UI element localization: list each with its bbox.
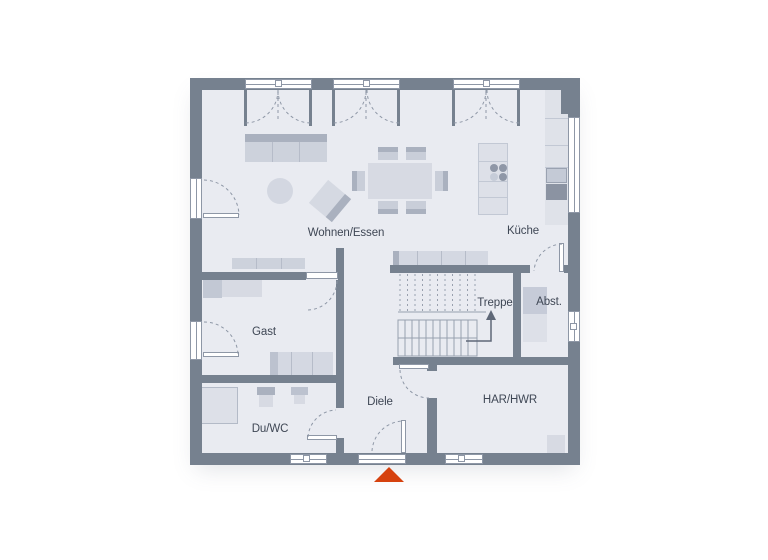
window-knob: [458, 455, 465, 462]
storage-shelf: [523, 314, 547, 342]
door-post: [309, 89, 312, 126]
window-knob: [483, 80, 490, 87]
guest-desk: [222, 279, 262, 297]
dining-chair: [406, 147, 426, 160]
sofa: [245, 142, 327, 162]
cooktop-burner: [499, 164, 507, 172]
microwave: [546, 168, 567, 183]
island-divider: [479, 197, 507, 198]
wall-showerwc-top: [199, 375, 344, 383]
door-post: [244, 89, 247, 126]
sideboard-divider: [281, 258, 282, 269]
bed-divider: [312, 352, 313, 377]
sink-basin: [259, 395, 273, 407]
terrace-door-sill-living: [190, 178, 202, 219]
dining-chair: [352, 171, 365, 191]
island-divider: [479, 181, 507, 182]
toilet: [291, 387, 308, 395]
room-label-hallway: Diele: [367, 396, 393, 408]
cooktop-burner: [490, 173, 498, 181]
window-knob: [363, 80, 370, 87]
room-label-kitchen: Küche: [507, 225, 539, 237]
room-label-shower-wc: Du/WC: [252, 423, 289, 435]
utility-equipment: [547, 435, 565, 453]
floor-plan: Wohnen/Essen Küche Gast Treppe Abst. Die…: [0, 0, 768, 560]
dining-chair: [378, 201, 398, 214]
coffee-table: [267, 178, 293, 204]
counter-divider: [545, 145, 568, 146]
entrance-door-sill: [358, 454, 406, 464]
sideboard: [232, 258, 305, 269]
dining-chair: [406, 201, 426, 214]
sideboard-divider: [256, 258, 257, 269]
window-knob: [570, 323, 577, 330]
sink: [257, 387, 275, 395]
wall-corner-pillar: [561, 78, 580, 114]
terrace-door-sill-guest: [190, 321, 202, 360]
door-leaf-showerwc: [307, 435, 337, 440]
door-leaf-guest: [306, 272, 338, 279]
island-divider: [479, 161, 507, 162]
shower: [200, 387, 238, 424]
sofa-backrest: [245, 134, 327, 142]
window-kitchen: [568, 117, 580, 213]
sideboard: [393, 251, 488, 265]
door-post: [452, 89, 455, 126]
door-opening-showerwc: [336, 408, 344, 438]
terrace-door-leaf-living: [203, 213, 239, 218]
counter-divider: [545, 118, 568, 119]
kitchen-island: [478, 143, 508, 215]
door-leaf-utility: [399, 364, 429, 369]
guest-dresser: [203, 278, 222, 298]
bed-divider: [291, 352, 292, 377]
room-label-utility: HAR/HWR: [483, 394, 537, 406]
wall-utility-left: [427, 398, 437, 453]
oven: [546, 184, 567, 200]
entrance-marker-icon: [374, 467, 404, 482]
dining-chair: [435, 171, 448, 191]
room-label-stairs: Treppe: [477, 297, 512, 309]
room-label-storage: Abst.: [536, 296, 562, 308]
door-post: [397, 89, 400, 126]
sideboard-divider: [441, 251, 442, 265]
wall-stairs-storage: [513, 273, 521, 357]
dining-table: [368, 163, 432, 199]
terrace-door-leaf-guest: [203, 352, 239, 357]
toilet-bowl: [294, 395, 305, 404]
door-post: [517, 89, 520, 126]
cooktop-burner: [499, 173, 507, 181]
sideboard-divider: [417, 251, 418, 265]
sideboard-divider: [465, 251, 466, 265]
room-label-living-dining: Wohnen/Essen: [308, 227, 385, 239]
door-leaf-storage: [559, 243, 564, 272]
sofa-cushion-divider: [272, 142, 273, 162]
room-label-guest: Gast: [252, 326, 276, 338]
sofa-cushion-divider: [299, 142, 300, 162]
cooktop-burner: [490, 164, 498, 172]
guest-bed: [270, 352, 333, 377]
window-knob: [275, 80, 282, 87]
door-post: [332, 89, 335, 126]
window-knob: [303, 455, 310, 462]
dining-chair: [378, 147, 398, 160]
door-leaf-entrance: [401, 420, 406, 453]
